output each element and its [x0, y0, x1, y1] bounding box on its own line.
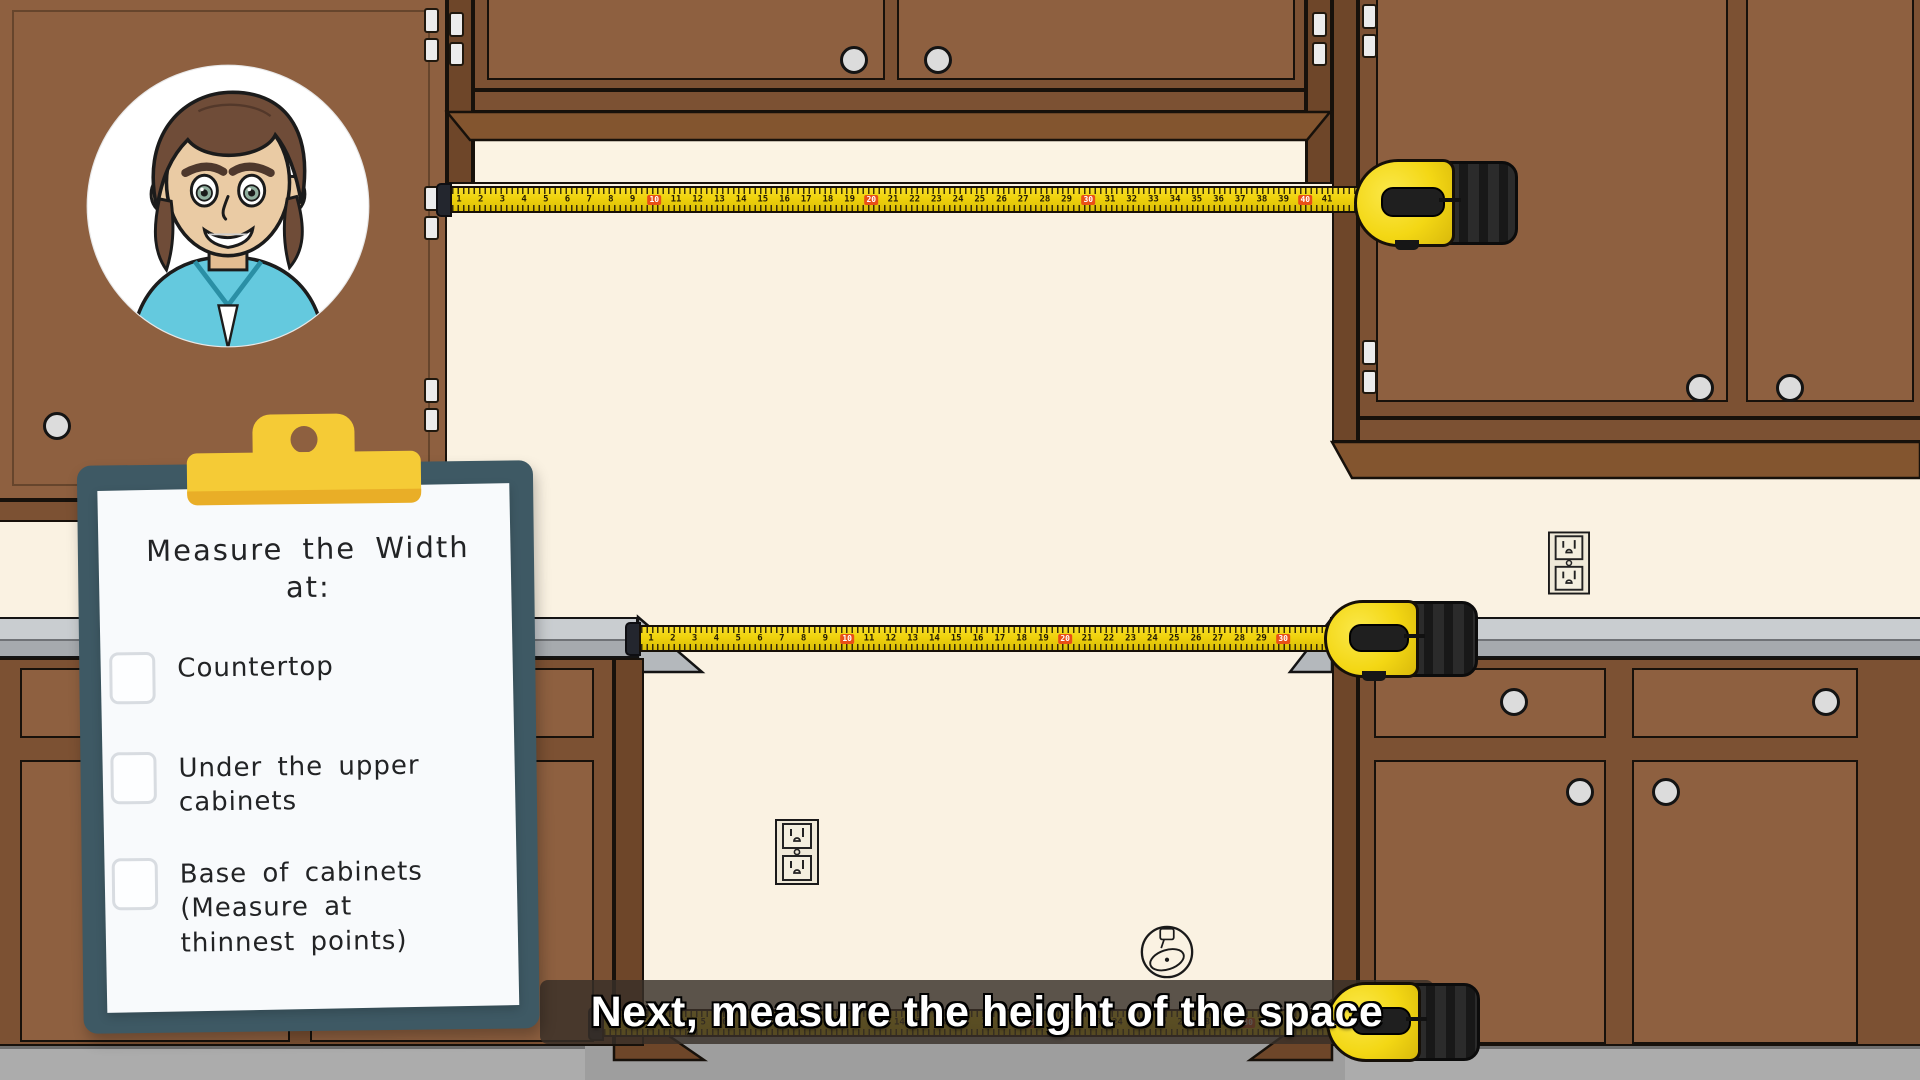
tape-number: 14	[736, 195, 747, 204]
tape-number: 40	[1298, 195, 1312, 205]
checklist-item-countertop: Countertop	[109, 648, 436, 704]
tape-number: 3	[692, 634, 697, 643]
upper-right-door-small	[1746, 0, 1914, 402]
tape-number: 26	[1191, 634, 1202, 643]
tape-body-stub	[1439, 198, 1461, 203]
tape-number: 10	[647, 195, 661, 205]
tape-number: 28	[1039, 195, 1050, 204]
tape-number: 11	[864, 634, 875, 643]
tape-number: 22	[909, 195, 920, 204]
tape-number: 25	[974, 195, 985, 204]
tape-number: 34	[1170, 195, 1181, 204]
tape-body-tab	[1395, 240, 1419, 250]
checkbox-base-of-cabinets[interactable]	[112, 858, 159, 911]
right-base-door-knob-2	[1652, 778, 1680, 806]
tape-body-grip	[1349, 624, 1409, 651]
tape-number: 33	[1148, 195, 1159, 204]
tape-number: 26	[996, 195, 1007, 204]
kitchen-scene: 1234567891011121314151617181920212223242…	[0, 0, 1920, 1080]
tape-number: 21	[1082, 634, 1093, 643]
tape-number: 35	[1191, 195, 1202, 204]
checklist-item-under-upper-cabinets: Under the upper cabinets	[110, 748, 437, 821]
upper-middle-hinge-left	[449, 12, 464, 66]
upper-middle-cabinet	[473, 0, 1306, 90]
under-cabinet-recess	[473, 138, 1307, 184]
tape-number: 29	[1061, 195, 1072, 204]
tape-number: 9	[823, 634, 828, 643]
checklist-item-label: Countertop	[177, 648, 435, 685]
clipboard: Measure the Width at: Countertop Under t…	[76, 411, 540, 1037]
upper-right-knob-right	[1776, 374, 1804, 402]
checkbox-countertop[interactable]	[109, 652, 156, 705]
upper-middle-bottom-band	[473, 90, 1306, 112]
clipboard-clip-hole	[290, 426, 317, 453]
tape-number: 2	[670, 634, 675, 643]
upper-right-knob-left	[1686, 374, 1714, 402]
tape-number: 7	[586, 195, 591, 204]
tape-number: 20	[1058, 634, 1072, 644]
checklist-item-label: Base of cabinets (Measure at thinnest po…	[180, 854, 439, 960]
tape-number: 1	[648, 634, 653, 643]
tape-number: 6	[757, 634, 762, 643]
tape-number: 38	[1256, 195, 1267, 204]
tape-number: 27	[1018, 195, 1029, 204]
tape-number: 23	[1125, 634, 1136, 643]
right-base-door-knob-1	[1566, 778, 1594, 806]
wall-outlet-middle	[775, 819, 819, 885]
tape-number: 12	[885, 634, 896, 643]
upper-right-bottom-band	[1358, 418, 1920, 442]
tape-number: 8	[608, 195, 613, 204]
countertop-tape-body	[1324, 600, 1472, 672]
tape-body-grip	[1381, 187, 1445, 217]
upper-right-hinge-bottom	[1362, 340, 1377, 394]
tape-body-stub	[1404, 634, 1425, 638]
tape-number: 21	[888, 195, 899, 204]
upper-middle-hinge-right	[1312, 12, 1327, 66]
tape-number: 37	[1235, 195, 1246, 204]
tape-number: 9	[630, 195, 635, 204]
subtitle-text: Next, measure the height of the space	[540, 980, 1434, 1044]
presenter-avatar	[86, 64, 370, 348]
power-outlet-icon	[1548, 531, 1590, 595]
tape-number: 3	[500, 195, 505, 204]
checklist-item-base-of-cabinets: Base of cabinets (Measure at thinnest po…	[112, 854, 439, 961]
tape-number: 19	[844, 195, 855, 204]
power-outlet-icon	[775, 819, 819, 885]
tape-number: 22	[1103, 634, 1114, 643]
tape-measure-logo-icon	[1138, 923, 1196, 981]
tape-number: 12	[692, 195, 703, 204]
checkbox-under-upper-cabinets[interactable]	[110, 752, 157, 805]
tape-number: 5	[543, 195, 548, 204]
upper-middle-knob-right	[924, 46, 952, 74]
clipboard-clip-lip	[187, 489, 421, 506]
tape-number: 13	[714, 195, 725, 204]
tape-number: 41	[1322, 195, 1333, 204]
right-base-drawer-knob-1	[1500, 688, 1528, 716]
upper-middle-door-right	[897, 0, 1295, 80]
upper-right-hinge-top	[1362, 4, 1377, 58]
checklist-title-line2: at:	[118, 568, 498, 607]
tape-number: 6	[565, 195, 570, 204]
tape-number: 15	[951, 634, 962, 643]
tape-number: 16	[779, 195, 790, 204]
tape-number: 17	[994, 634, 1005, 643]
upper-middle-knob-left	[840, 46, 868, 74]
tape-number: 25	[1169, 634, 1180, 643]
tape-number: 20	[864, 195, 878, 205]
tape-number: 7	[779, 634, 784, 643]
tape-body-tab	[1362, 671, 1386, 681]
countertop-tape-strip: 1234567891011121314151617181920212223242…	[639, 625, 1331, 652]
tape-number: 31	[1105, 195, 1116, 204]
tape-number: 13	[907, 634, 918, 643]
tape-number: 18	[822, 195, 833, 204]
tape-number: 15	[757, 195, 768, 204]
checklist-title-line1: Measure the Width	[118, 530, 498, 569]
tape-number: 10	[840, 634, 854, 644]
tape-number: 24	[953, 195, 964, 204]
tape-number: 32	[1126, 195, 1137, 204]
tape-number: 27	[1212, 634, 1223, 643]
upper-left-hinge-top	[424, 8, 439, 62]
tape-number: 11	[671, 195, 682, 204]
tape-number: 30	[1276, 634, 1290, 644]
top-tape-strip: 1234567891011121314151617181920212223242…	[450, 186, 1362, 213]
tape-number: 4	[714, 634, 719, 643]
tape-number: 17	[801, 195, 812, 204]
upper-left-cabinet-knob	[43, 412, 71, 440]
tape-number: 14	[929, 634, 940, 643]
tape-number: 19	[1038, 634, 1049, 643]
presenter-avatar-icon	[86, 64, 370, 348]
right-base-drawer-knob-2	[1812, 688, 1840, 716]
tape-number: 28	[1234, 634, 1245, 643]
upper-middle-door-left	[487, 0, 885, 80]
tape-number: 39	[1278, 195, 1289, 204]
tape-number: 23	[931, 195, 942, 204]
tape-number: 24	[1147, 634, 1158, 643]
right-base-drawer-1	[1374, 668, 1606, 738]
tape-number: 5	[735, 634, 740, 643]
tape-number: 2	[478, 195, 483, 204]
wall-outlet-right	[1548, 531, 1590, 595]
tape-number: 1	[456, 195, 461, 204]
tape-number: 30	[1081, 195, 1095, 205]
tape-number: 4	[521, 195, 526, 204]
checklist-item-label: Under the upper cabinets	[178, 748, 437, 820]
tape-number: 29	[1256, 634, 1267, 643]
tape-number: 36	[1213, 195, 1224, 204]
tape-number: 18	[1016, 634, 1027, 643]
tape-number: 16	[973, 634, 984, 643]
tape-number: 8	[801, 634, 806, 643]
top-tape-body	[1354, 159, 1512, 241]
